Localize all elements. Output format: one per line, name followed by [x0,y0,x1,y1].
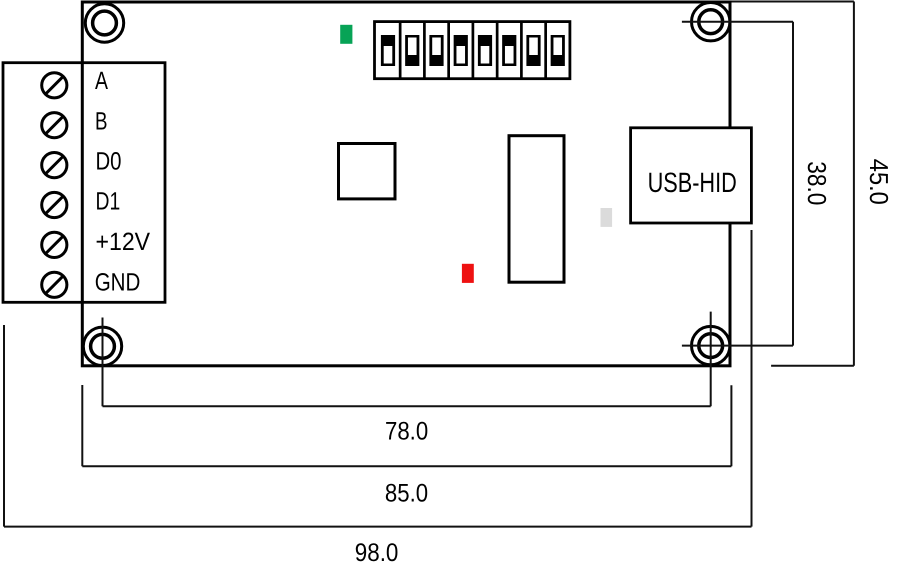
svg-text:98.0: 98.0 [355,539,399,567]
svg-text:45.0: 45.0 [864,159,894,205]
svg-text:D1: D1 [96,188,121,216]
svg-text:USB-HID: USB-HID [648,167,737,198]
svg-text:78.0: 78.0 [385,417,428,445]
svg-text:+12V: +12V [96,228,151,256]
svg-text:38.0: 38.0 [802,161,832,205]
svg-text:85.0: 85.0 [385,480,428,508]
svg-text:GND: GND [95,268,141,296]
svg-text:A: A [95,67,108,95]
svg-text:D0: D0 [96,147,122,175]
svg-text:B: B [95,108,108,136]
